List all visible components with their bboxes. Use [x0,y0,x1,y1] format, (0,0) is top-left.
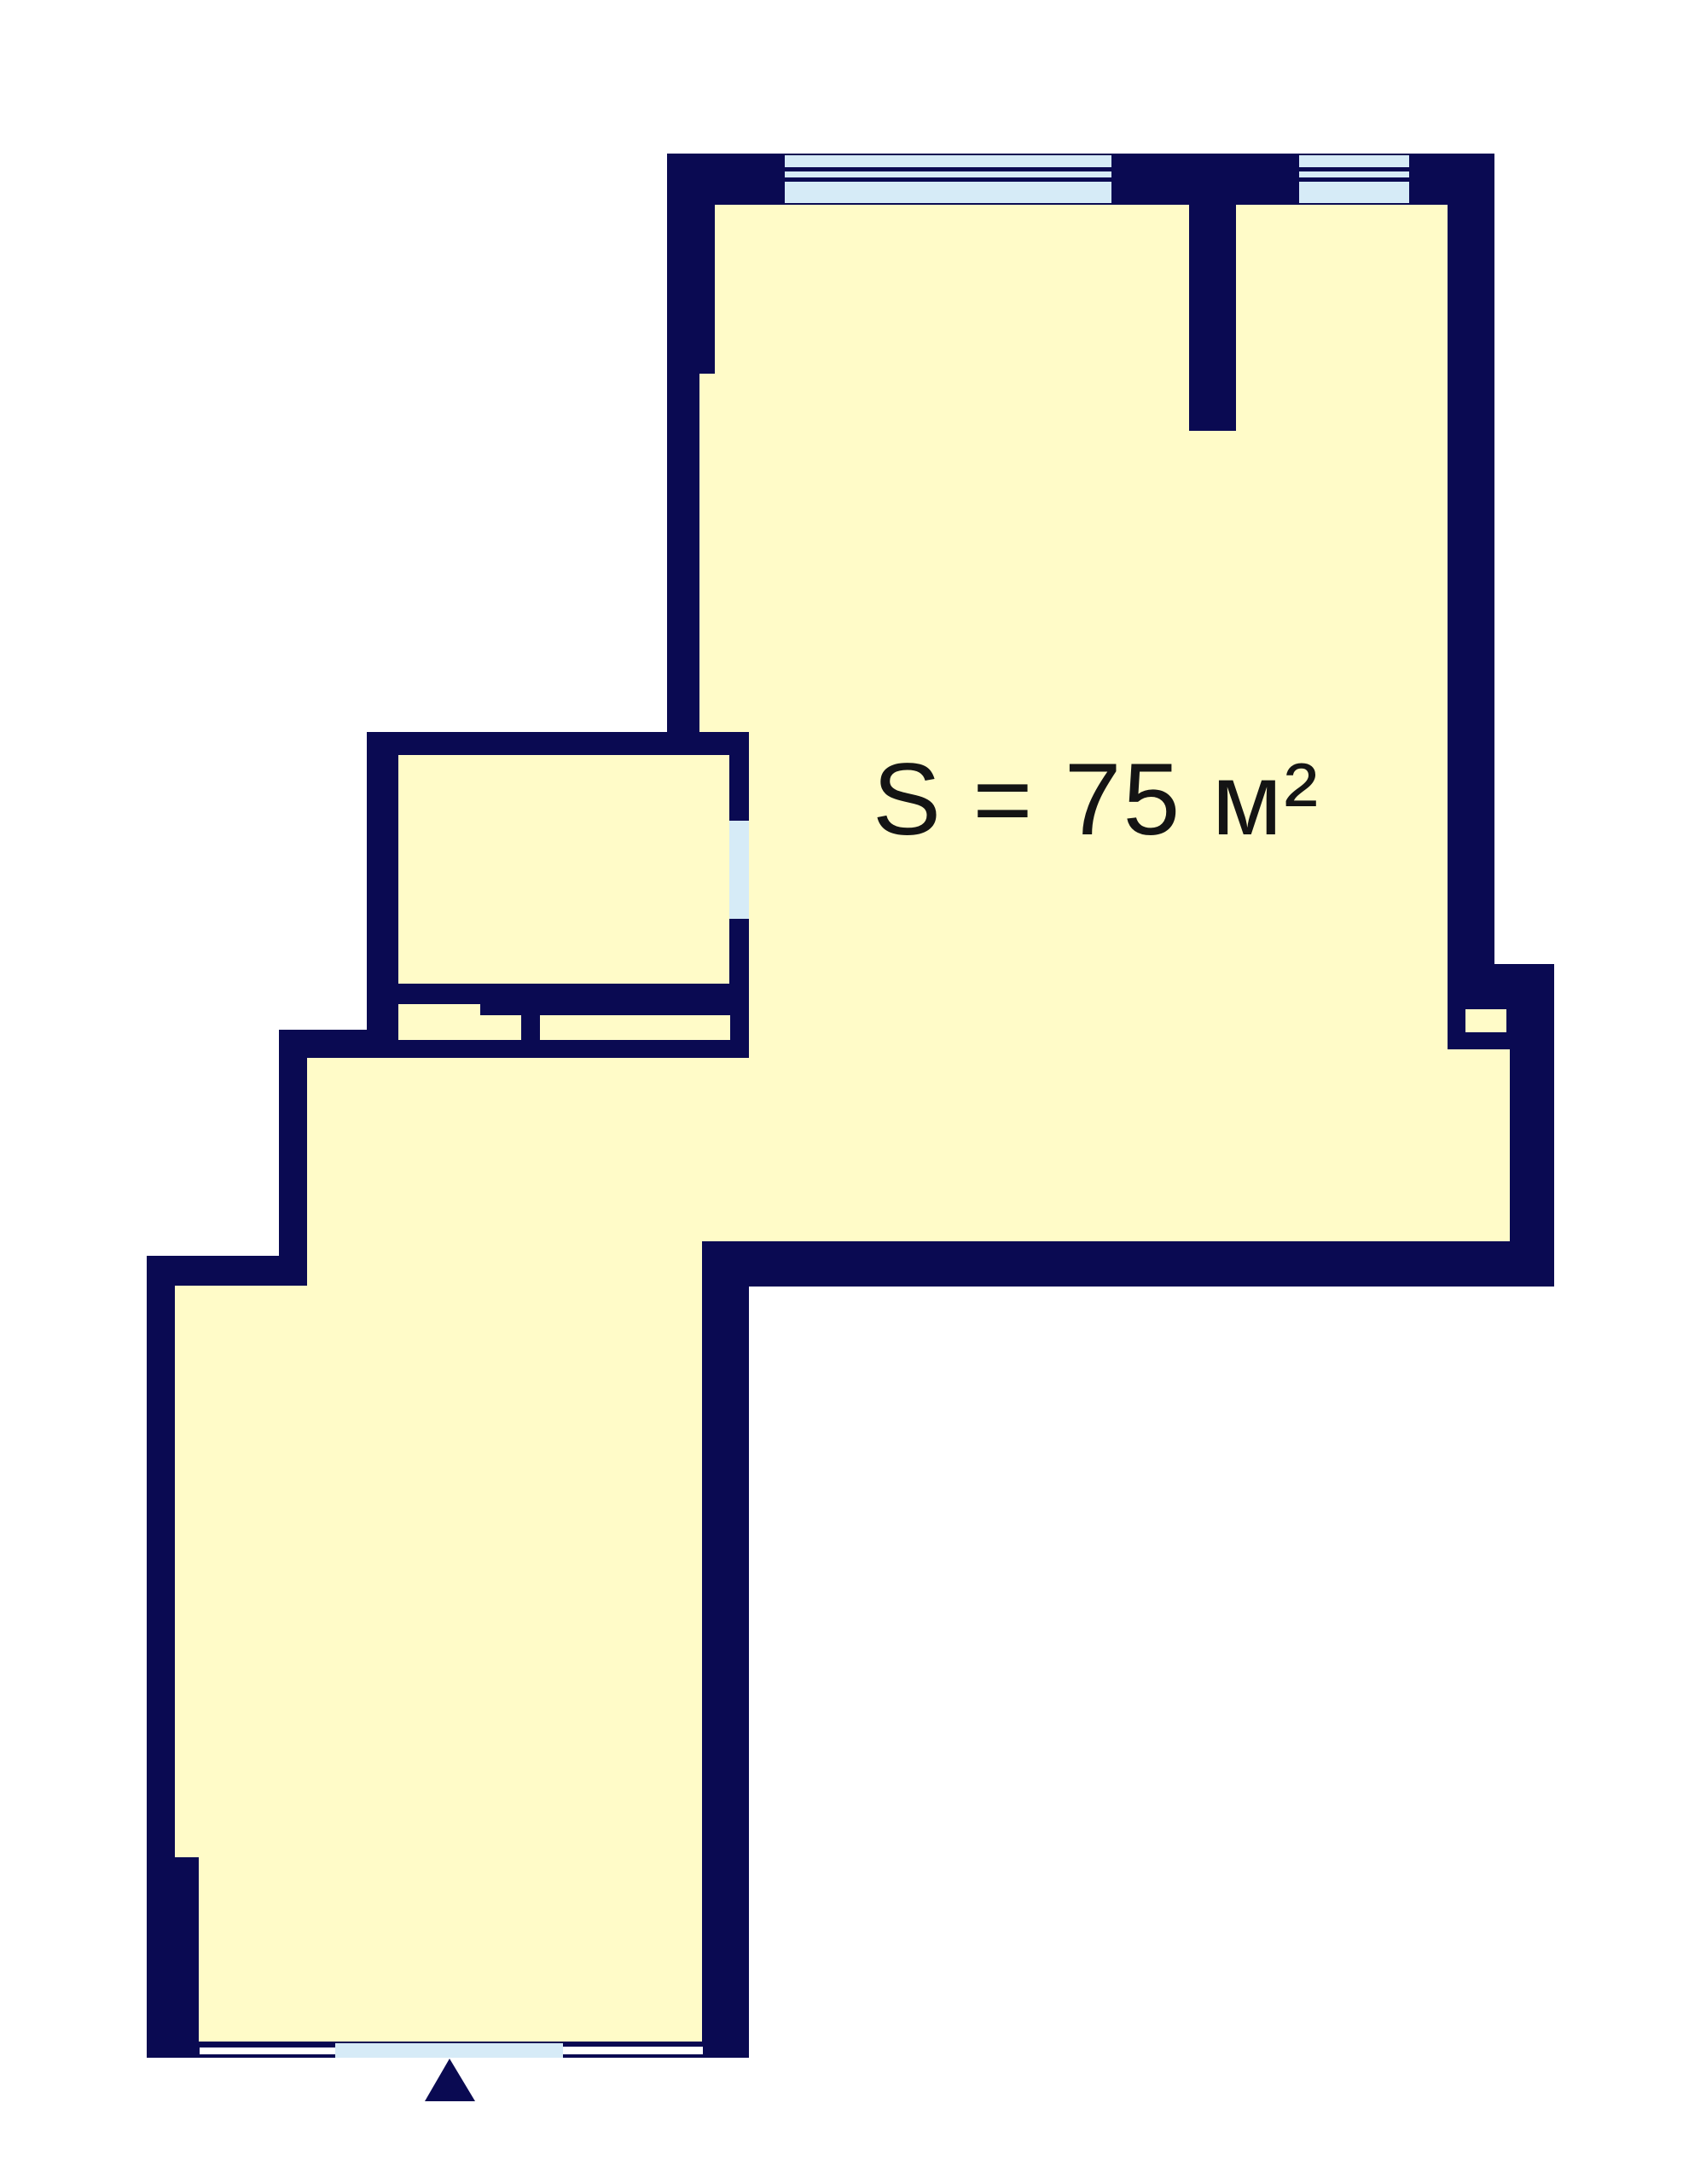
partition-wall-stub [1189,205,1236,431]
window-mullion-line [785,167,1111,171]
door-opening-right [540,1015,730,1040]
window-small-room [729,821,749,919]
window-top-wide [785,155,1111,203]
window-top-narrow [1299,155,1409,203]
main-room-floor [175,205,1510,2042]
wall-niche [1465,1009,1506,1032]
window-mullion-line [1299,177,1409,182]
small-room-floor [398,755,729,984]
door-opening-left [398,1004,480,1040]
area-label: S = 75 м² [873,742,1320,857]
window-mullion-line [785,177,1111,182]
floor-plan-page: S = 75 м² [0,0,1706,2184]
threshold-line-right [563,2047,703,2054]
door-opening-left-step [480,1015,521,1040]
entrance-door-opening [335,2043,563,2058]
entrance-arrow-icon [425,2059,475,2101]
threshold-line-left [200,2047,335,2054]
floor-plan-svg: S = 75 м² [0,0,1706,2184]
window-mullion-line [1299,167,1409,171]
